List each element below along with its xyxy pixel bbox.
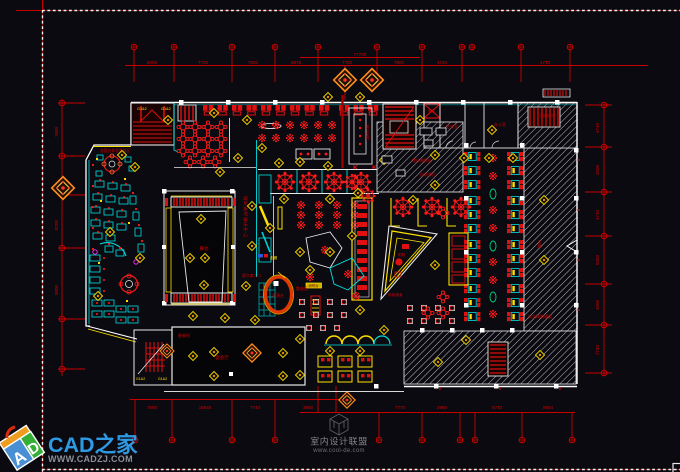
svg-text:自助餐厅: 自助餐厅: [420, 171, 436, 177]
svg-text:5000: 5000: [595, 254, 600, 265]
svg-text:7600: 7600: [54, 126, 59, 137]
svg-text:15840: 15840: [199, 405, 212, 410]
svg-text:7700: 7700: [198, 60, 209, 65]
svg-text:G1&2: G1&2: [161, 107, 171, 111]
svg-text:走廊: 走廊: [270, 255, 278, 260]
svg-text:设备机房: 设备机房: [540, 112, 556, 118]
svg-text:办公室: 办公室: [494, 121, 506, 127]
svg-text:4500: 4500: [595, 299, 600, 310]
svg-text:室内设计联盟: 室内设计联盟: [310, 436, 368, 447]
svg-text:更衣室: 更衣室: [446, 123, 458, 129]
svg-text:舞池: 舞池: [200, 245, 209, 252]
svg-text:3960: 3960: [437, 405, 448, 410]
svg-text:G1&2: G1&2: [137, 107, 147, 111]
svg-text:7740: 7740: [595, 344, 600, 355]
svg-text:煲仔海鲜区: 煲仔海鲜区: [412, 157, 432, 163]
svg-text:8000: 8000: [147, 60, 158, 65]
svg-text:咨客台休息等候区: 咨客台休息等候区: [100, 148, 131, 153]
svg-text:明档: 明档: [398, 252, 406, 257]
svg-text:走廊: 走廊: [538, 239, 543, 249]
svg-text:G1&2: G1&2: [136, 377, 145, 381]
svg-text:宴会厅: 宴会厅: [215, 354, 229, 361]
svg-text:4740: 4740: [595, 209, 600, 220]
svg-text:WWW.CADZJ.COM: WWW.CADZJ.COM: [48, 454, 133, 464]
svg-text:散座区: 散座区: [296, 285, 308, 291]
svg-text:备餐间: 备餐间: [178, 332, 190, 338]
svg-text:6740: 6740: [492, 405, 503, 410]
svg-text:8875: 8875: [291, 60, 302, 65]
svg-text:77700: 77700: [354, 52, 367, 57]
svg-text:9800: 9800: [54, 284, 59, 295]
svg-text:7600: 7600: [147, 405, 158, 410]
svg-text:G1&2: G1&2: [158, 377, 167, 381]
svg-text:3800: 3800: [303, 405, 314, 410]
svg-text:客梯: 客梯: [428, 108, 435, 113]
svg-text:9804: 9804: [543, 405, 554, 410]
svg-text:观众席入口: 观众席入口: [242, 273, 261, 278]
svg-text:7800: 7800: [394, 60, 405, 65]
svg-text:7800: 7800: [248, 60, 259, 65]
svg-text:4740: 4740: [595, 122, 600, 133]
svg-text:7740: 7740: [250, 405, 261, 410]
svg-text:男卫生间: 男卫生间: [365, 124, 370, 140]
svg-text:4740: 4740: [540, 60, 551, 65]
svg-text:传菜通道: 传菜通道: [388, 292, 403, 297]
svg-text:威尼斯湾娱乐中心: 威尼斯湾娱乐中心: [243, 195, 249, 238]
svg-text:安全疏散通道: 安全疏散通道: [528, 313, 552, 319]
svg-text:8200: 8200: [54, 219, 59, 230]
svg-text:7770: 7770: [395, 405, 406, 410]
svg-text:K: K: [372, 165, 377, 172]
svg-text:7750: 7750: [342, 60, 353, 65]
svg-text:表演台: 表演台: [272, 292, 284, 298]
svg-text:www.cool-de.com: www.cool-de.com: [312, 448, 365, 454]
svg-text:K: K: [353, 165, 358, 172]
svg-text:酒吧台: 酒吧台: [308, 283, 319, 288]
svg-text:4500: 4500: [595, 164, 600, 175]
svg-text:4740: 4740: [437, 60, 448, 65]
